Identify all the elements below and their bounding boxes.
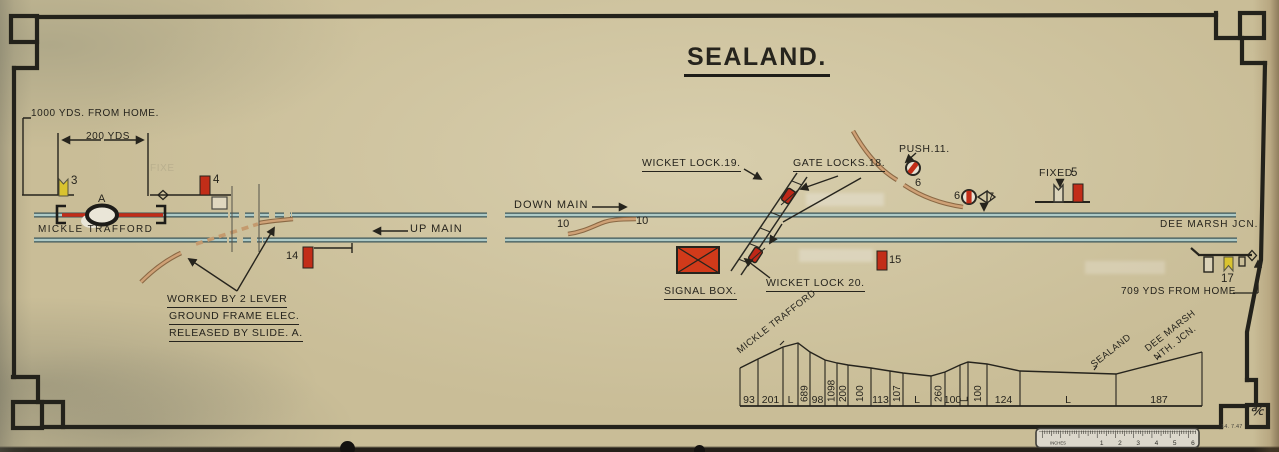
label-mickle-trafford: MICKLE TRAFFORD — [38, 224, 153, 235]
diagram-title: SEALAND. — [684, 44, 830, 77]
gradient-value: 93 — [743, 394, 755, 406]
label-gate-locks-18: GATE LOCKS.18. — [793, 158, 885, 172]
punch-hole — [340, 441, 355, 452]
gradient-value: 200 — [838, 385, 849, 402]
ruler-number: 1 — [1100, 440, 1104, 447]
date-stamp: 14. 7.47 — [1221, 424, 1242, 430]
corner-monogram: ℀ — [1250, 404, 1264, 418]
label-down-main: DOWN MAIN — [514, 199, 588, 211]
label-signal-box: SIGNAL BOX. — [664, 286, 737, 300]
signal-number-17: 17 — [1221, 273, 1234, 286]
gradient-value: L — [1065, 394, 1071, 406]
disc-number-6: 6 — [954, 190, 960, 202]
erased-ghost-marks — [799, 193, 1165, 274]
signal-number-4: 4 — [213, 174, 219, 187]
signal-number-3: 3 — [71, 175, 77, 188]
signal-number-15: 15 — [889, 254, 901, 266]
marker-number-7: 7 — [988, 191, 994, 203]
gradient-value: 113 — [872, 394, 889, 406]
gradient-value: 1098 — [827, 379, 838, 402]
note-worked-by-line1: WORKED BY 2 LEVER — [167, 294, 287, 308]
siding-branch-left — [141, 219, 293, 282]
label-dee-marsh-jcn: DEE MARSH JCN. — [1160, 219, 1258, 230]
label-push-11: PUSH.11. — [899, 144, 950, 156]
ruler-inches-label: INCHES — [1050, 441, 1066, 446]
signal-number-14: 14 — [286, 250, 298, 262]
crossover-number-10-left: 10 — [557, 218, 569, 230]
signal-5-fixed — [1035, 184, 1090, 202]
disc-signal-6 — [962, 190, 976, 204]
label-1000-yds: 1000 YDS. FROM HOME. — [31, 108, 159, 119]
annotation-arrows — [189, 153, 1160, 370]
gradient-value: L — [960, 396, 971, 402]
ruler-number: 3 — [1136, 440, 1140, 447]
ruler-number: 4 — [1155, 440, 1159, 447]
gradient-value: 201 — [762, 394, 780, 406]
label-709-yds: 709 YDS FROM HOME — [1121, 286, 1236, 297]
ruler-number: 6 — [1191, 440, 1195, 447]
ruler-number: 2 — [1118, 440, 1122, 447]
gradient-value: 107 — [892, 385, 903, 402]
gradient-profile-chart: 93201L689981098200100113107L260100L10012… — [740, 343, 1202, 406]
photograph-ruler: 123456INCHES — [1036, 429, 1199, 448]
signal-15 — [877, 251, 887, 270]
label-fixed: FIXED — [1039, 168, 1073, 180]
gradient-value: 689 — [800, 385, 811, 402]
sealand-signalling-diagram: 93201L689981098200100113107L260100L10012… — [0, 0, 1279, 452]
gradient-value: 100 — [973, 385, 984, 402]
level-crossing — [731, 173, 807, 275]
label-wicket-lock-20: WICKET LOCK 20. — [766, 278, 865, 292]
note-worked-by-line3: RELEASED BY SLIDE. A. — [169, 328, 303, 342]
ruler-number: 5 — [1173, 440, 1177, 447]
disc-signal-push-11 — [906, 161, 920, 175]
label-up-main: UP MAIN — [410, 223, 463, 235]
label-200-yds: 200 YDS — [86, 131, 130, 142]
gradient-value: 100 — [855, 385, 866, 402]
crossover-10 — [568, 219, 636, 234]
signal-number-5: 5 — [1071, 167, 1077, 180]
signal-14 — [303, 243, 352, 268]
note-worked-by-line2: GROUND FRAME ELEC. — [169, 311, 299, 325]
crossover-number-10-right: 10 — [636, 215, 648, 227]
point-number-6: 6 — [915, 177, 921, 189]
signal-box-symbol — [677, 247, 719, 273]
punch-hole — [694, 445, 705, 452]
gradient-value: 124 — [995, 394, 1013, 406]
signal-3-distant — [59, 179, 68, 196]
label-wicket-lock-19: WICKET LOCK.19. — [642, 158, 741, 172]
gradient-value: 187 — [1150, 394, 1168, 406]
gradient-value: 98 — [812, 394, 824, 406]
gradient-value: L — [914, 394, 920, 406]
crossing-gates — [748, 188, 798, 264]
ghost-erased-text: FIXE — [150, 163, 175, 174]
slide-a-letter: A — [98, 193, 105, 205]
gradient-value: L — [788, 394, 794, 406]
